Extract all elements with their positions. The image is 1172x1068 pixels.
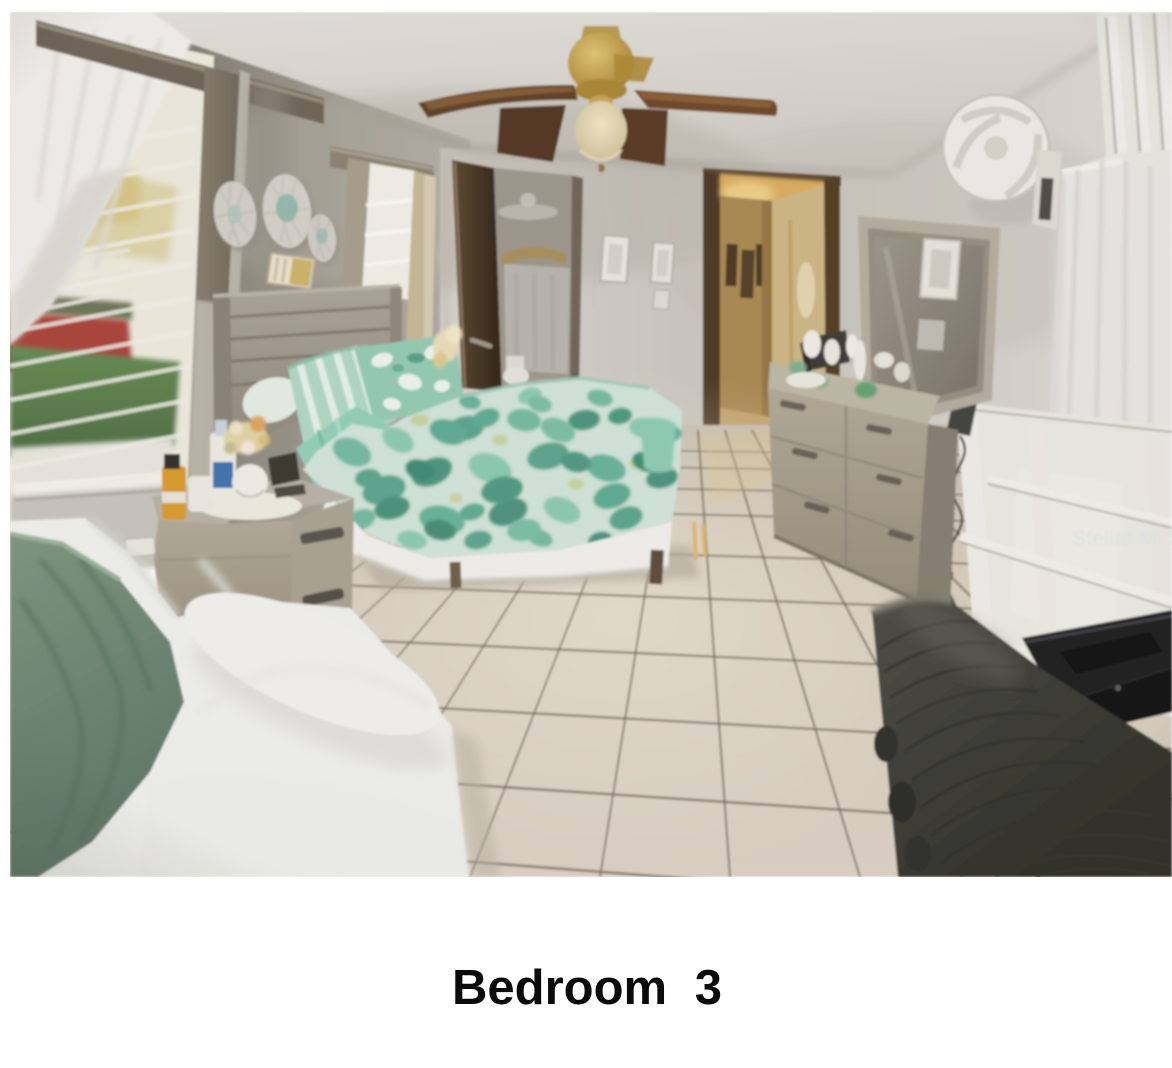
svg-text:Stellar MLS: Stellar MLS — [1072, 526, 1172, 550]
